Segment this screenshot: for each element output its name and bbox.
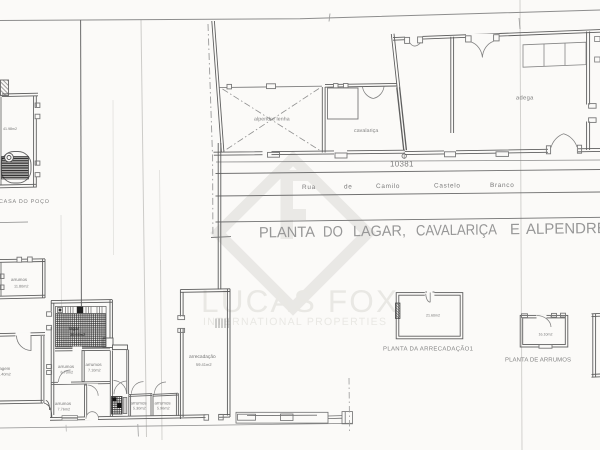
- svg-text:de: de: [344, 184, 353, 191]
- svg-text:Rua: Rua: [302, 184, 316, 191]
- svg-text:5.96m2: 5.96m2: [157, 407, 170, 411]
- svg-text:arrumos: arrumos: [11, 277, 28, 282]
- svg-text:arrumos: arrumos: [55, 401, 72, 406]
- svg-text:5.30m2: 5.30m2: [133, 407, 146, 411]
- svg-text:16.10m2: 16.10m2: [539, 333, 553, 337]
- svg-text:PLANTA: PLANTA: [259, 224, 315, 242]
- svg-text:21.60m2: 21.60m2: [426, 314, 440, 318]
- svg-text:PLANTA DA ARRECADAÇÃO1: PLANTA DA ARRECADAÇÃO1: [383, 345, 474, 353]
- svg-text:Castelo: Castelo: [434, 183, 461, 190]
- svg-text:alpendre lenha: alpendre lenha: [254, 117, 290, 123]
- svg-text:arrumos: arrumos: [86, 362, 103, 367]
- svg-text:11.80m2: 11.80m2: [14, 285, 29, 289]
- svg-text:arrecadação: arrecadação: [189, 354, 216, 360]
- svg-text:arrumos: arrumos: [58, 364, 75, 369]
- svg-text:6.70m2: 6.70m2: [61, 371, 74, 375]
- svg-text:garagem: garagem: [0, 366, 11, 371]
- svg-text:arrumos: arrumos: [155, 401, 172, 406]
- svg-text:CAVALARIÇA: CAVALARIÇA: [416, 221, 497, 239]
- svg-text:DO: DO: [323, 223, 343, 240]
- svg-text:CASA DO POÇO: CASA DO POÇO: [0, 199, 49, 205]
- svg-text:7.76m2: 7.76m2: [58, 408, 71, 412]
- svg-text:Camilo: Camilo: [376, 183, 400, 190]
- svg-text:LAGAR,: LAGAR,: [353, 223, 406, 241]
- svg-text:lagar: lagar: [69, 326, 80, 331]
- svg-text:22.40m2: 22.40m2: [0, 373, 11, 377]
- svg-text:30.66m2: 30.66m2: [70, 332, 85, 337]
- svg-text:adega: adega: [516, 95, 534, 102]
- svg-text:7.10m2: 7.10m2: [88, 369, 101, 373]
- svg-text:E: E: [510, 221, 520, 238]
- svg-text:cavalariça: cavalariça: [354, 128, 378, 134]
- svg-text:10381: 10381: [390, 160, 414, 169]
- svg-text:Branco: Branco: [490, 182, 514, 189]
- svg-text:41.98m2: 41.98m2: [3, 127, 17, 131]
- svg-text:PLANTA DE ARRUMOS: PLANTA DE ARRUMOS: [505, 357, 571, 364]
- svg-text:59.41m2: 59.41m2: [196, 362, 212, 367]
- svg-text:ALPENDRE: ALPENDRE: [526, 220, 600, 238]
- svg-text:arrumos: arrumos: [131, 401, 148, 406]
